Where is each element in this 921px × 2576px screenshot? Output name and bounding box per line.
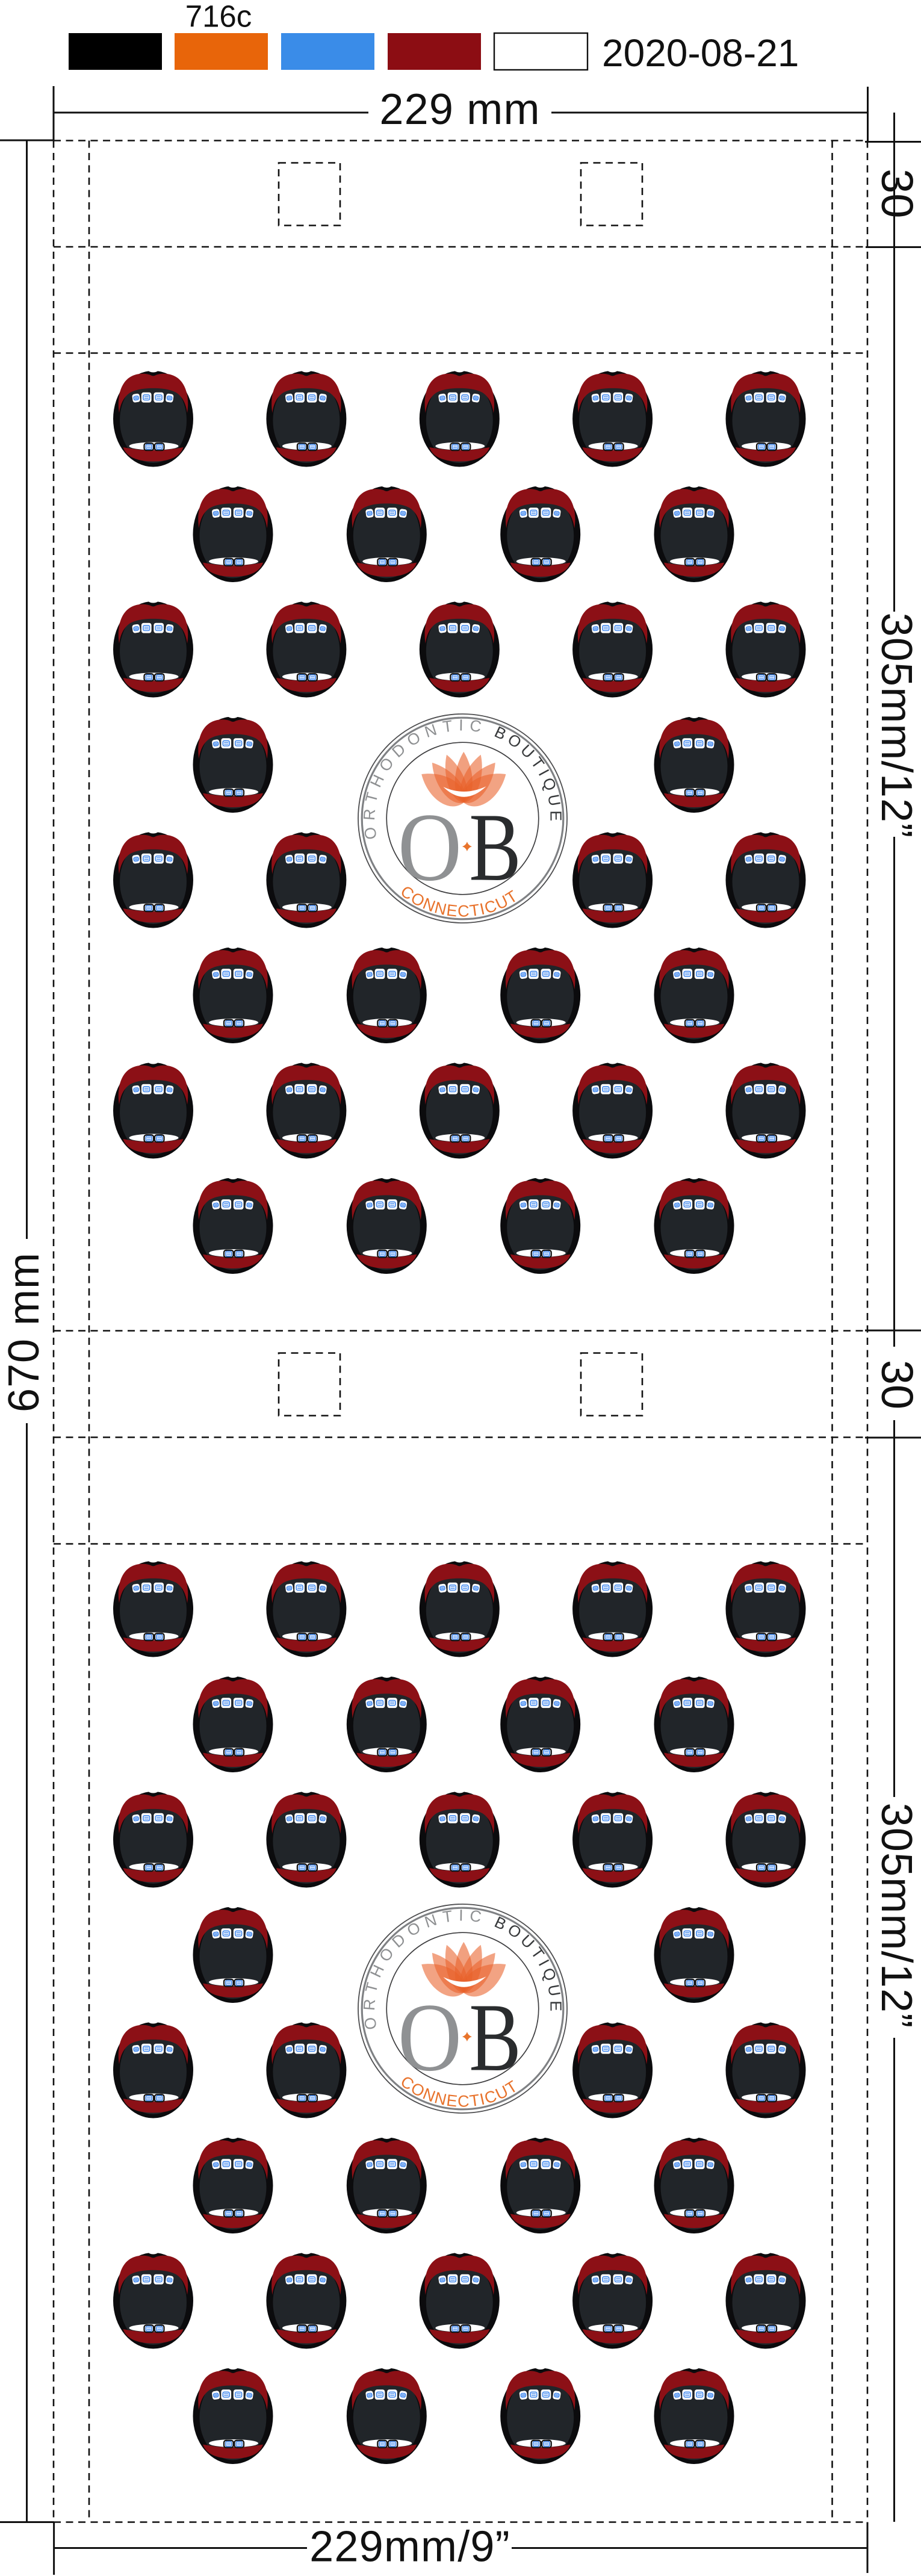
- svg-text:716c: 716c: [185, 0, 252, 33]
- svg-text:670 mm: 670 mm: [0, 1252, 48, 1412]
- svg-text:30: 30: [872, 169, 921, 218]
- svg-text:2020-08-21: 2020-08-21: [602, 31, 799, 75]
- svg-text:305mm/12”: 305mm/12”: [872, 613, 920, 839]
- svg-text:30: 30: [872, 1360, 921, 1409]
- svg-text:229 mm: 229 mm: [379, 85, 540, 134]
- svg-text:229mm/9”: 229mm/9”: [309, 2523, 510, 2571]
- svg-text:305mm/12”: 305mm/12”: [872, 1803, 920, 2029]
